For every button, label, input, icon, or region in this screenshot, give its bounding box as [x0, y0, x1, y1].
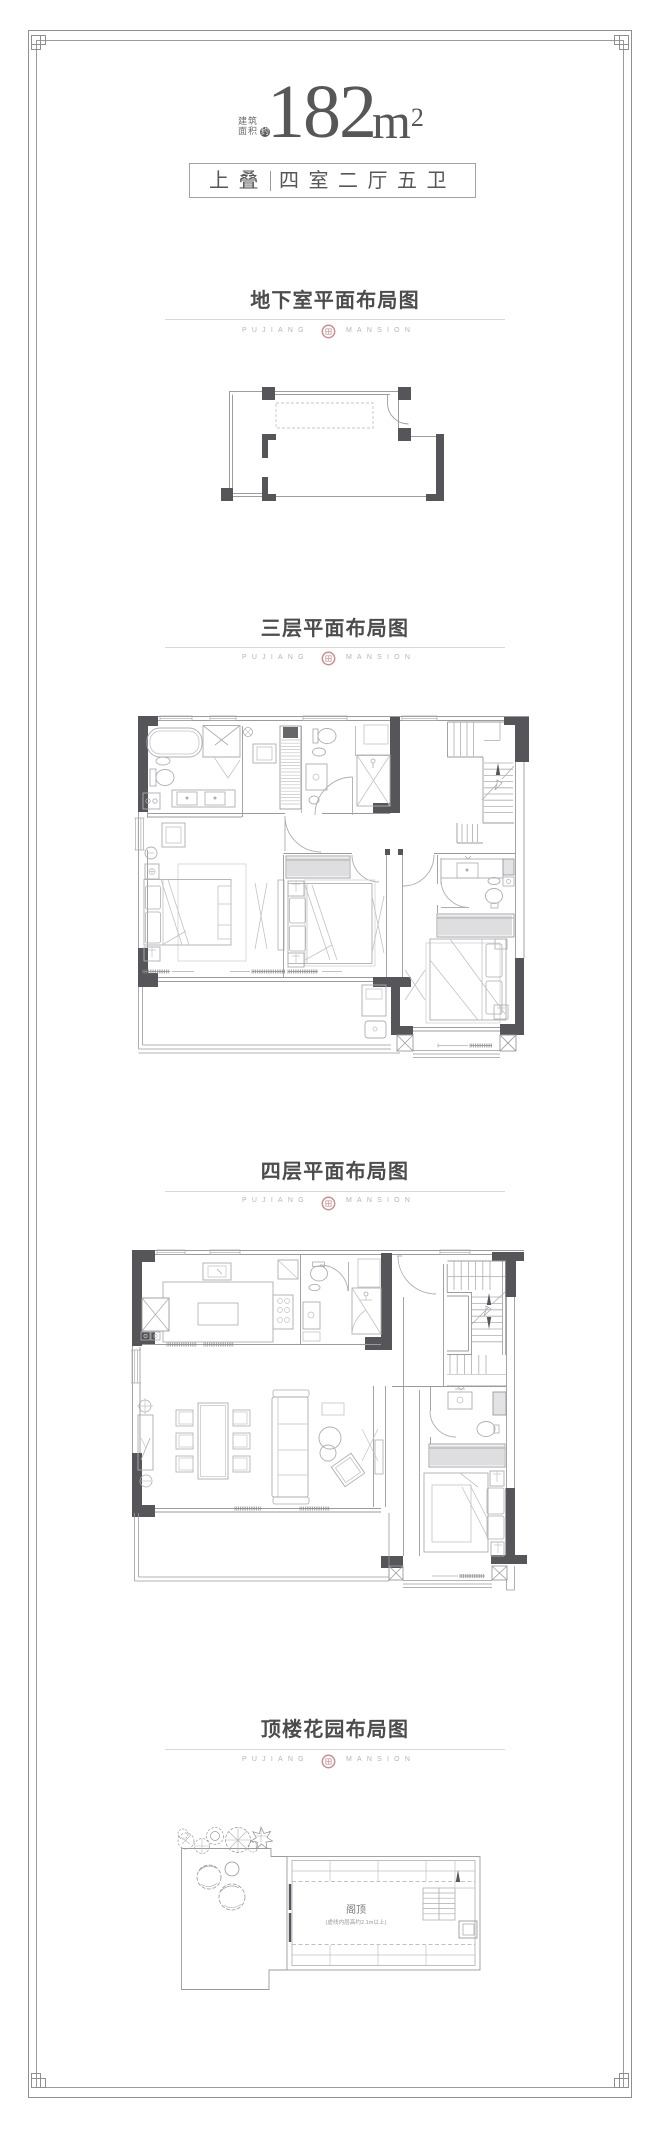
svg-text:阁顶: 阁顶: [346, 1903, 366, 1916]
svg-text:(虚线内层高约2.1m以上): (虚线内层高约2.1m以上): [326, 1918, 387, 1926]
